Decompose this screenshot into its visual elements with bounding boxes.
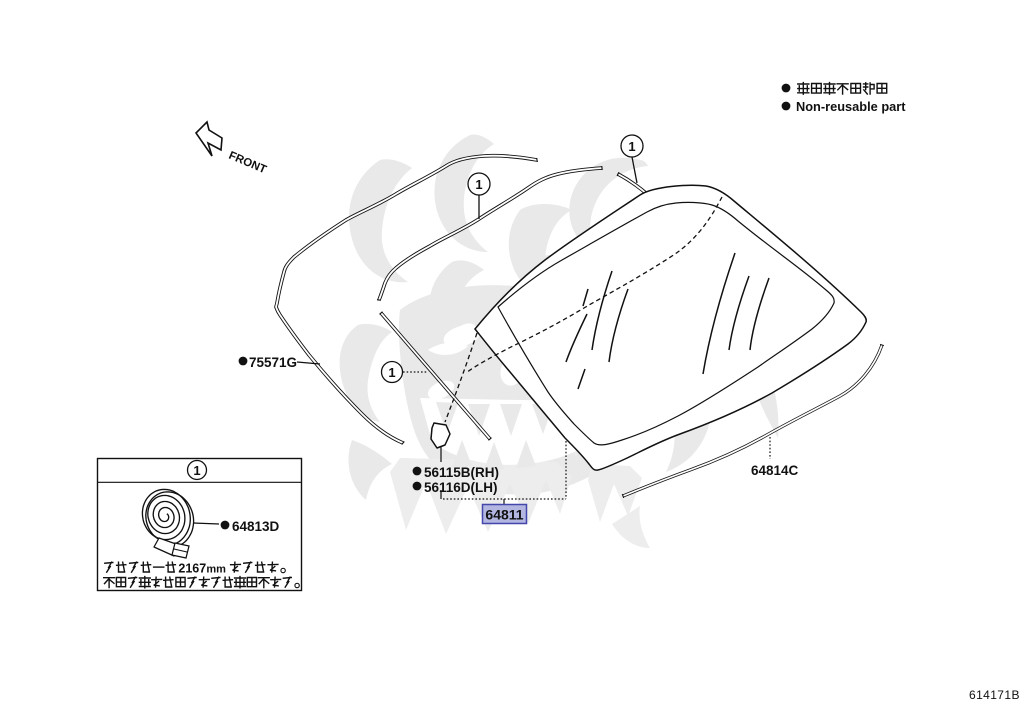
svg-text:1: 1 — [388, 365, 395, 380]
svg-text:Non-reusable part: Non-reusable part — [796, 99, 906, 114]
svg-text:1: 1 — [193, 463, 200, 478]
svg-text:64814C: 64814C — [751, 463, 799, 478]
svg-text:mm: mm — [206, 564, 226, 576]
svg-text:64811: 64811 — [485, 507, 523, 523]
svg-text:56115B(RH): 56115B(RH) — [424, 465, 499, 480]
svg-text:1: 1 — [475, 177, 482, 192]
svg-text:FRONT: FRONT — [227, 150, 268, 177]
svg-text:1: 1 — [628, 139, 635, 154]
svg-text:2167: 2167 — [178, 562, 206, 576]
svg-text:614171B: 614171B — [969, 688, 1020, 702]
svg-text:75571G: 75571G — [249, 355, 297, 370]
svg-text:64813D: 64813D — [232, 519, 280, 534]
svg-text:56116D(LH): 56116D(LH) — [424, 480, 498, 495]
